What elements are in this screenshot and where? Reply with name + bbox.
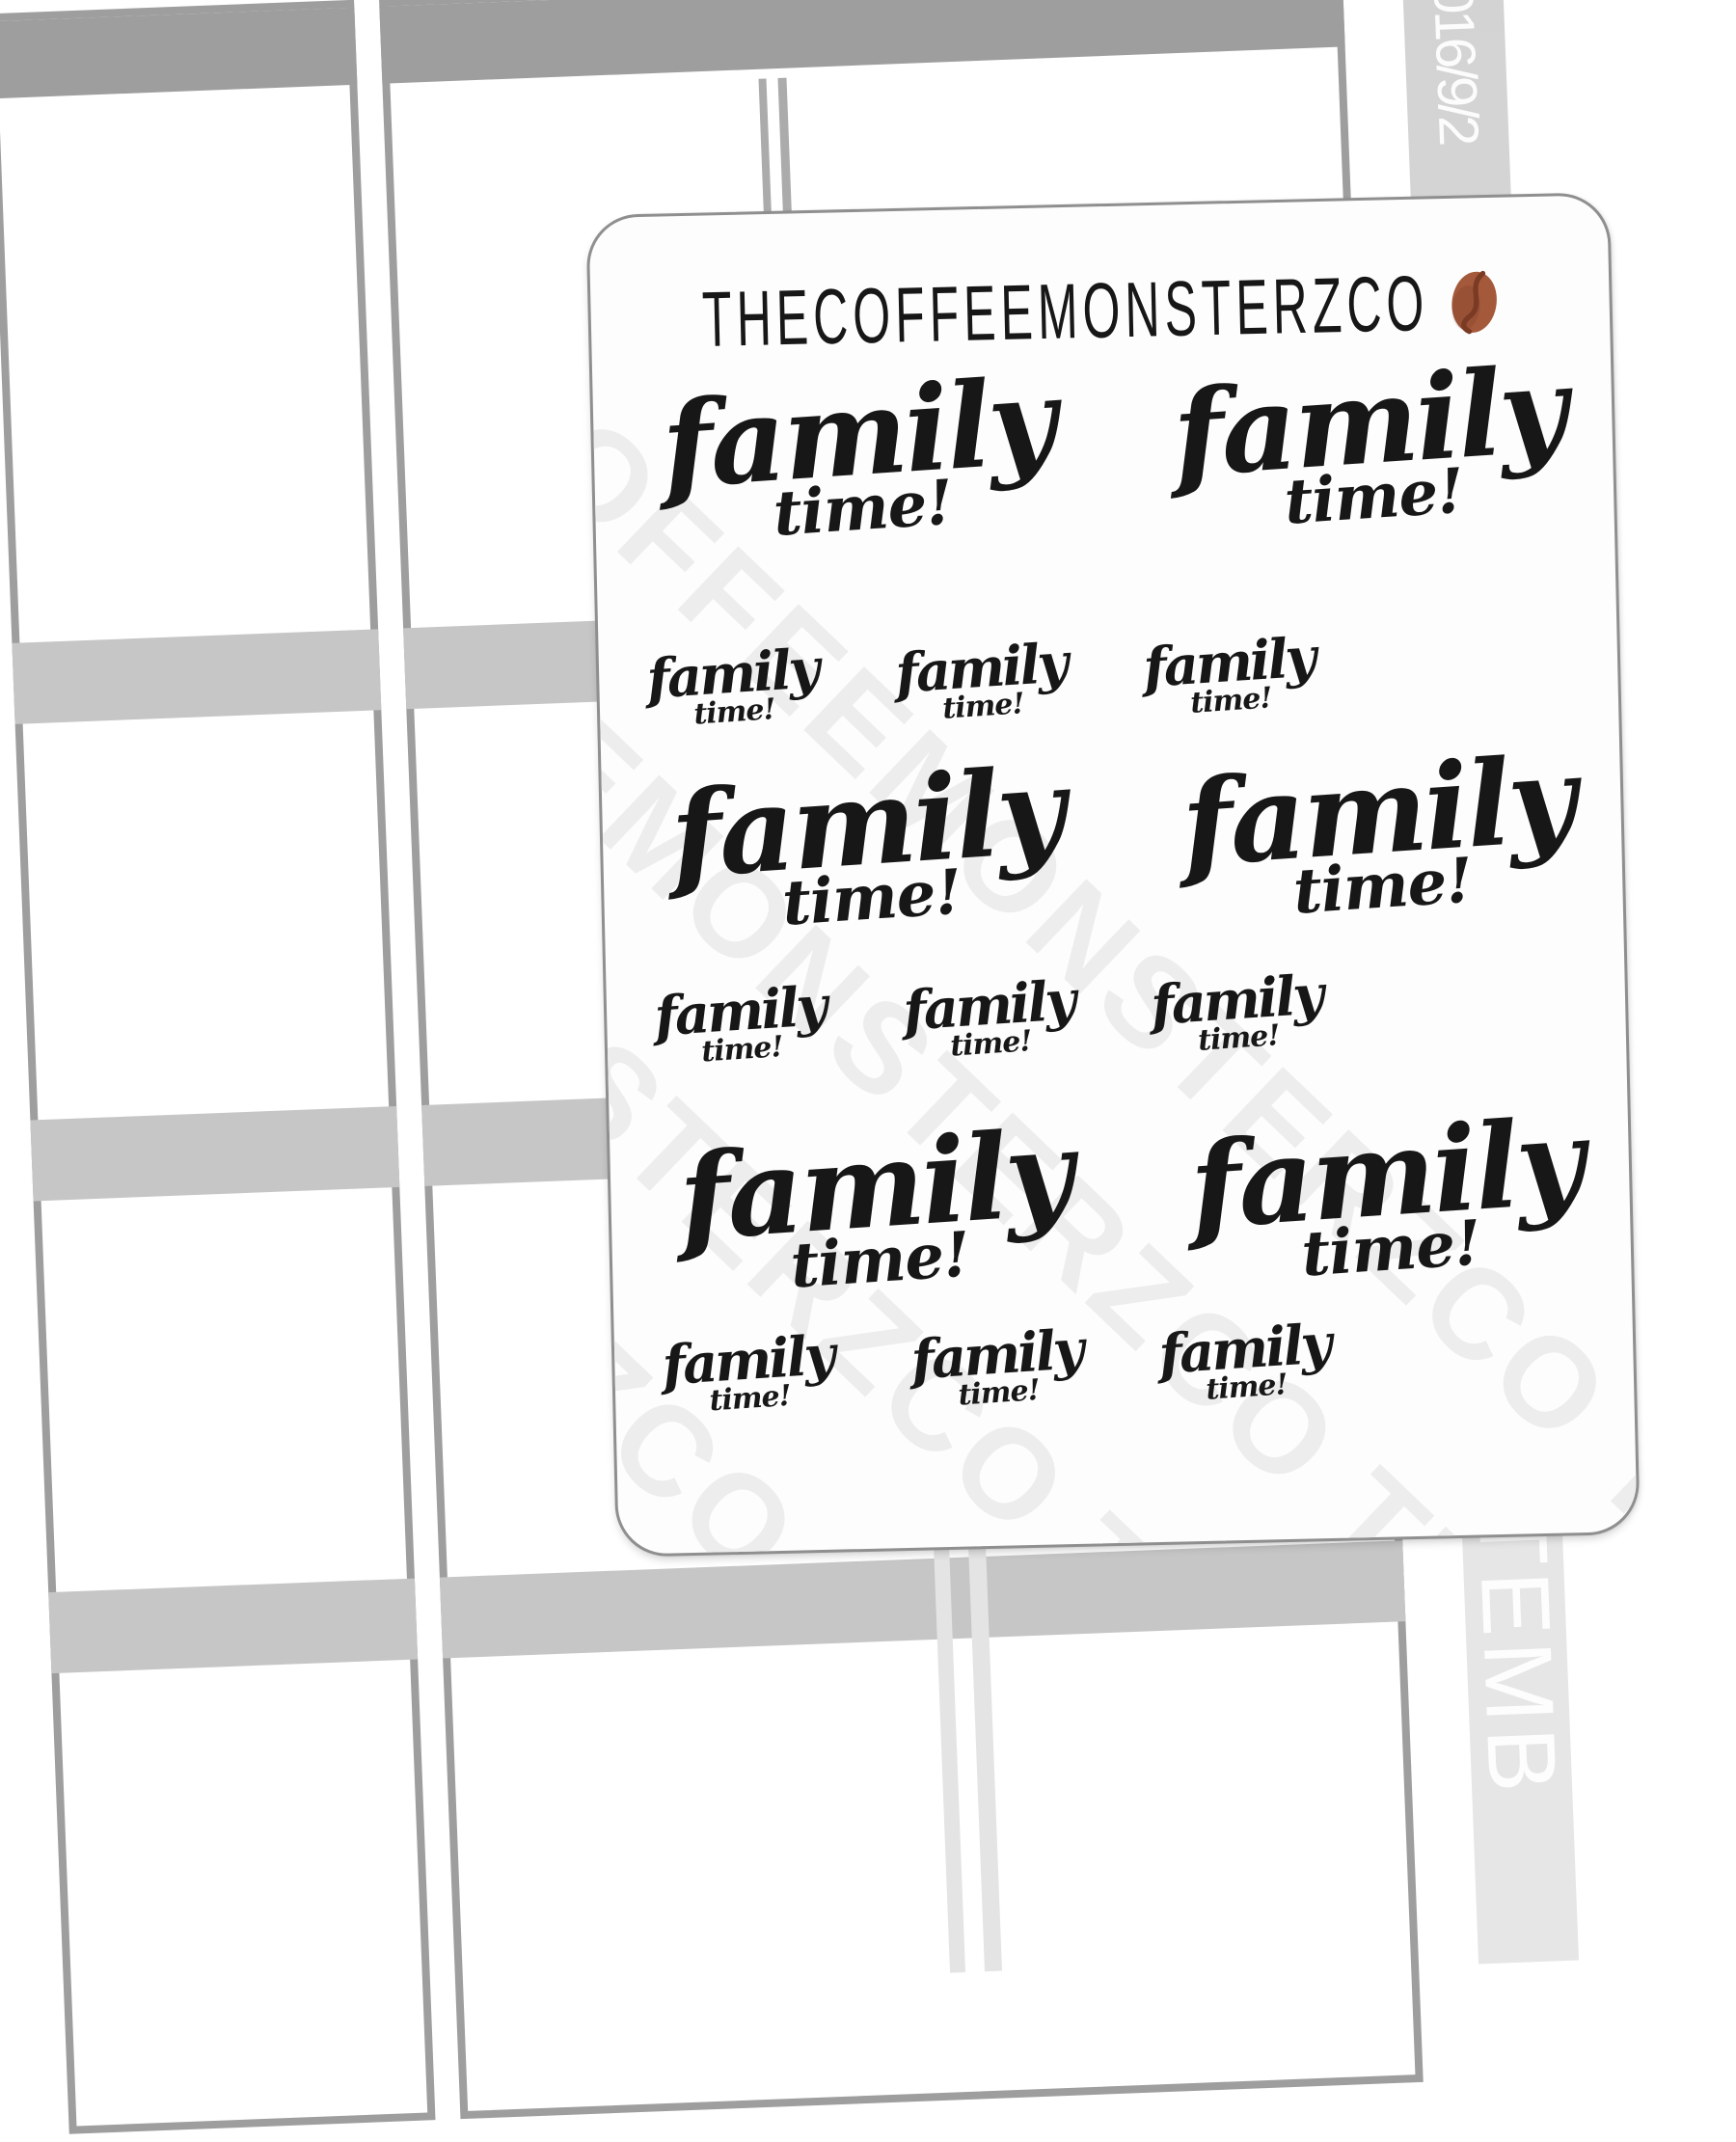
sticker-family-time: familytime!: [1169, 350, 1571, 547]
sticker-row: familytime!familytime!: [662, 358, 1569, 610]
sticker-family-time: familytime!: [1186, 1101, 1588, 1298]
row-band: [12, 629, 381, 724]
washi-tape-date-text: 2016/9/2: [1420, 0, 1491, 144]
sticker-family-time: familytime!: [1142, 630, 1317, 723]
sticker-sheet: THECOFFEEMONSTERZCO THECOFFEEMONSTERZCO …: [585, 192, 1640, 1558]
sticker-family-time: familytime!: [659, 362, 1061, 558]
brand-name: THECOFFEEMONSTERZCO: [701, 258, 1429, 365]
sticker-family-time: familytime!: [893, 636, 1069, 729]
sticker-row: familytime!familytime!familytime!: [655, 971, 1325, 1102]
column-header-band: [0, 8, 357, 99]
sticker-row: familytime!familytime!: [670, 747, 1578, 999]
sticker-family-time: familytime!: [1150, 967, 1325, 1061]
sticker-family-time: familytime!: [909, 1322, 1085, 1416]
row-band: [440, 1540, 1405, 1658]
sticker-family-time: familytime!: [653, 979, 828, 1072]
sticker-row: familytime!familytime!familytime!: [663, 1320, 1333, 1451]
sticker-family-time: familytime!: [901, 973, 1076, 1067]
sticker-family-time: familytime!: [661, 1328, 836, 1422]
sticker-family-time: familytime!: [1179, 739, 1581, 935]
planner-column-left: [0, 0, 436, 2134]
sticker-family-time: familytime!: [675, 1113, 1077, 1310]
sticker-family-time: familytime!: [667, 750, 1070, 947]
row-band: [30, 1106, 399, 1202]
column-header-band: [379, 0, 1344, 84]
coffee-bean-icon: [1446, 266, 1503, 338]
sticker-family-time: familytime!: [1157, 1316, 1333, 1410]
row-band: [48, 1579, 418, 1674]
sticker-family-time: familytime!: [645, 641, 821, 735]
